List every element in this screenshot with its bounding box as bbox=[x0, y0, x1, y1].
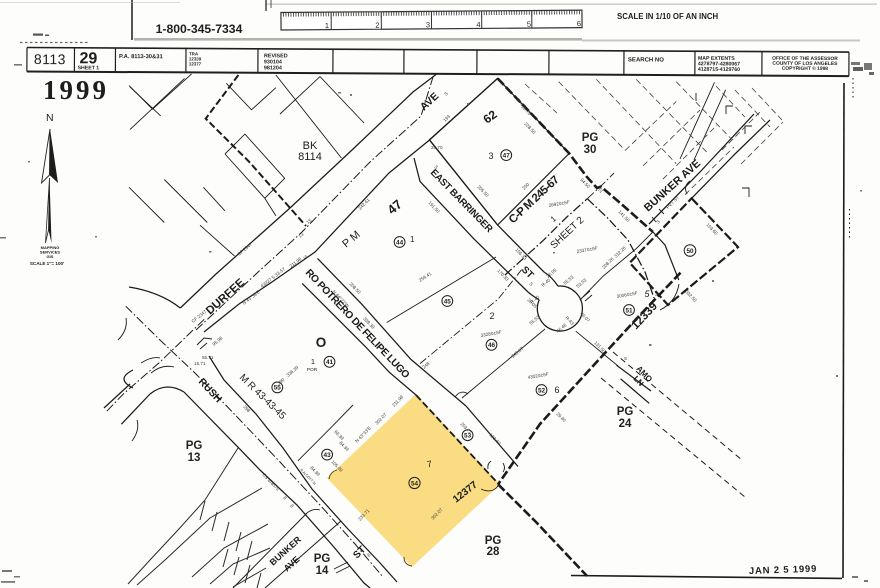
svg-text:GIS: GIS bbox=[47, 254, 54, 259]
svg-text:28: 28 bbox=[487, 546, 500, 558]
svg-text:46: 46 bbox=[488, 342, 496, 349]
svg-text:13: 13 bbox=[188, 452, 201, 464]
svg-text:52: 52 bbox=[538, 387, 546, 394]
svg-text:PG: PG bbox=[617, 406, 634, 418]
svg-text:24: 24 bbox=[619, 418, 632, 430]
svg-text:54: 54 bbox=[411, 480, 419, 487]
svg-text:3: 3 bbox=[488, 151, 493, 161]
svg-text:43: 43 bbox=[324, 452, 332, 459]
svg-text:41: 41 bbox=[326, 359, 334, 366]
svg-text:4128715-4129760: 4128715-4129760 bbox=[698, 67, 740, 73]
svg-text:15.71: 15.71 bbox=[194, 361, 206, 366]
svg-text:30: 30 bbox=[584, 144, 597, 156]
svg-text:8114: 8114 bbox=[298, 151, 322, 163]
svg-text:SHEET 1: SHEET 1 bbox=[78, 65, 100, 71]
svg-text:50: 50 bbox=[686, 248, 694, 255]
svg-text:26.70: 26.70 bbox=[431, 145, 443, 150]
svg-text:44: 44 bbox=[396, 239, 404, 246]
svg-text:1: 1 bbox=[410, 235, 415, 244]
svg-text:S: S bbox=[624, 356, 627, 361]
svg-text:P.A. 8113-30&31: P.A. 8113-30&31 bbox=[119, 54, 164, 60]
svg-text:8113: 8113 bbox=[34, 51, 66, 67]
svg-text:PG: PG bbox=[186, 440, 203, 452]
svg-text:1: 1 bbox=[325, 21, 329, 30]
svg-text:SCALE IN 1/10 OF AN INCH: SCALE IN 1/10 OF AN INCH bbox=[617, 12, 718, 21]
svg-text:2: 2 bbox=[489, 311, 494, 321]
svg-text:12377: 12377 bbox=[189, 61, 202, 66]
svg-text:PG: PG bbox=[582, 132, 599, 144]
svg-text:POR: POR bbox=[307, 367, 318, 373]
svg-text:1999: 1999 bbox=[43, 75, 109, 105]
svg-text:14: 14 bbox=[316, 565, 329, 577]
svg-text:53: 53 bbox=[464, 433, 472, 440]
svg-text:981204: 981204 bbox=[264, 65, 282, 71]
svg-text:PG: PG bbox=[314, 553, 331, 565]
svg-text:55.71: 55.71 bbox=[202, 355, 214, 360]
svg-text:5: 5 bbox=[527, 20, 531, 29]
svg-text:4: 4 bbox=[476, 20, 480, 29]
svg-text:6: 6 bbox=[577, 19, 581, 28]
svg-text:O: O bbox=[316, 335, 327, 350]
svg-text:2: 2 bbox=[375, 21, 379, 30]
svg-text:3: 3 bbox=[426, 20, 430, 29]
svg-text:55: 55 bbox=[274, 385, 282, 392]
svg-text:SCALE 1″= 100′: SCALE 1″= 100′ bbox=[30, 261, 65, 266]
svg-text:47: 47 bbox=[503, 152, 511, 159]
svg-text:45: 45 bbox=[444, 298, 452, 305]
svg-text:6: 6 bbox=[554, 385, 559, 395]
svg-text:SEARCH NO: SEARCH NO bbox=[628, 57, 664, 63]
svg-text:N: N bbox=[46, 112, 54, 124]
svg-text:1: 1 bbox=[311, 357, 315, 366]
svg-text:51: 51 bbox=[625, 307, 633, 314]
svg-text:1-800-345-7334: 1-800-345-7334 bbox=[156, 22, 243, 36]
